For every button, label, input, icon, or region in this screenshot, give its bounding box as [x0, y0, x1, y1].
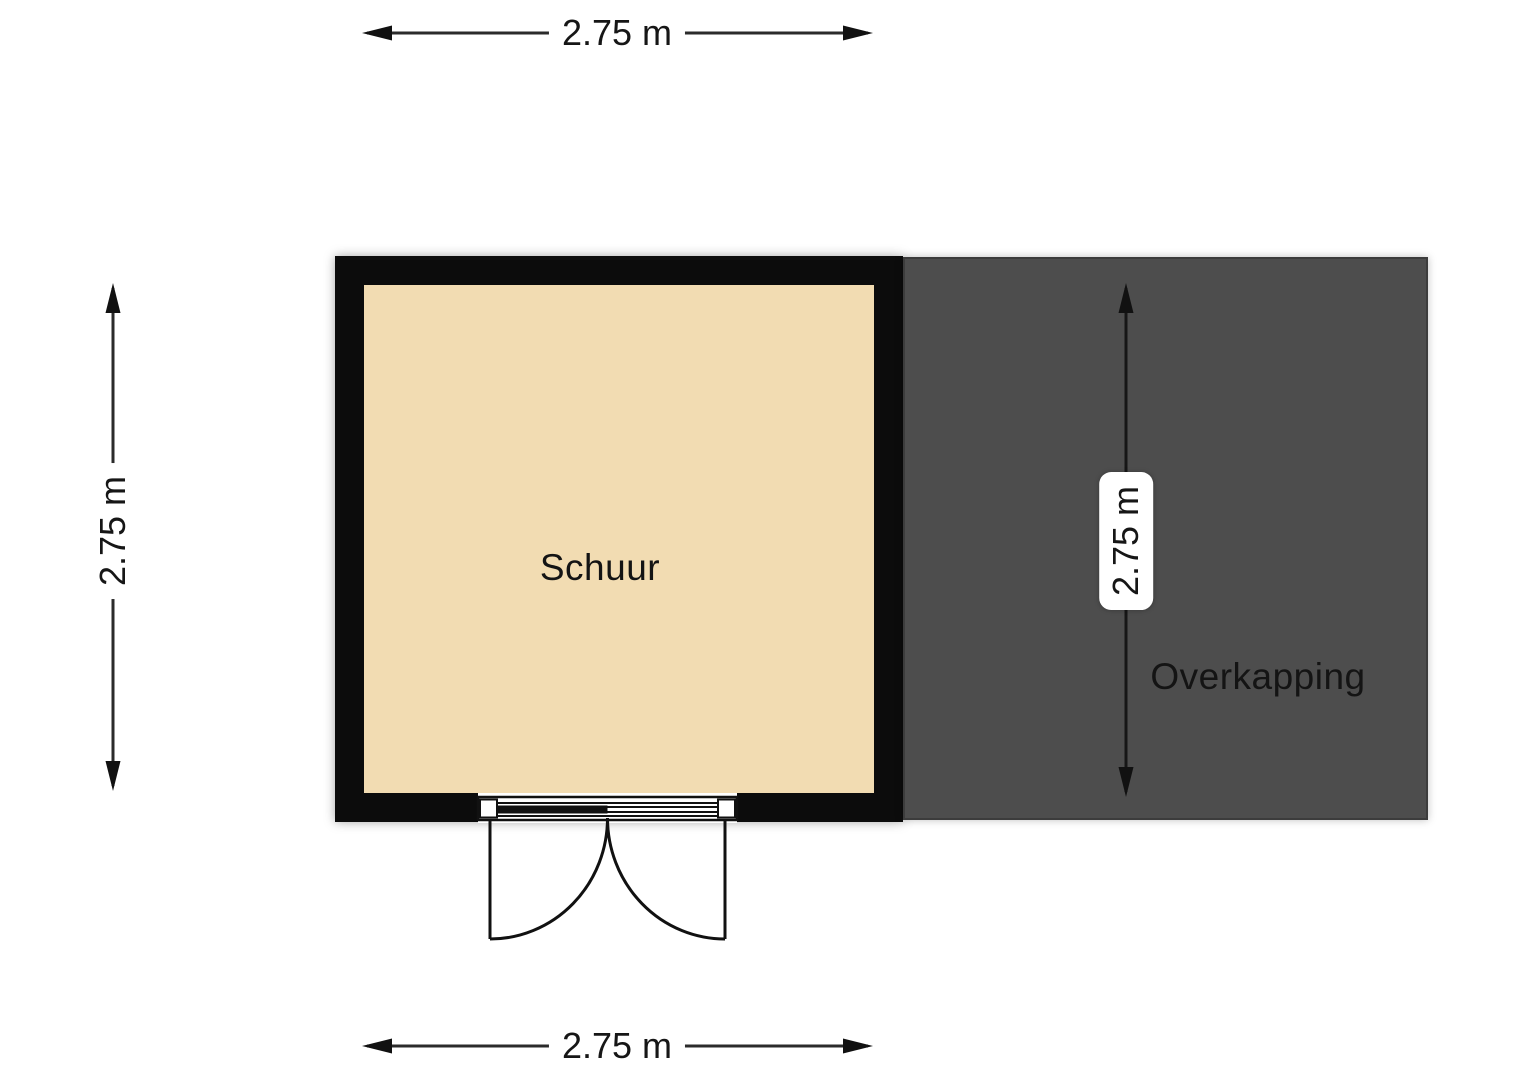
double-door-icon — [490, 818, 725, 939]
dimension-overkapping-label: 2.75 m — [1099, 472, 1153, 610]
schuur-room-label: Schuur — [540, 547, 660, 589]
dimension-top-label: 2.75 m — [549, 12, 685, 54]
dimension-left-label: 2.75 m — [92, 463, 134, 599]
door-opening — [478, 793, 737, 823]
shed-floor — [364, 285, 874, 793]
overkapping-area — [903, 257, 1428, 820]
dimension-bottom-label: 2.75 m — [549, 1025, 685, 1067]
overkapping-room-label: Overkapping — [1150, 656, 1365, 698]
floorplan-canvas: 2.75 m 2.75 m 2.75 m 2.75 m Schuur Overk… — [0, 0, 1527, 1080]
